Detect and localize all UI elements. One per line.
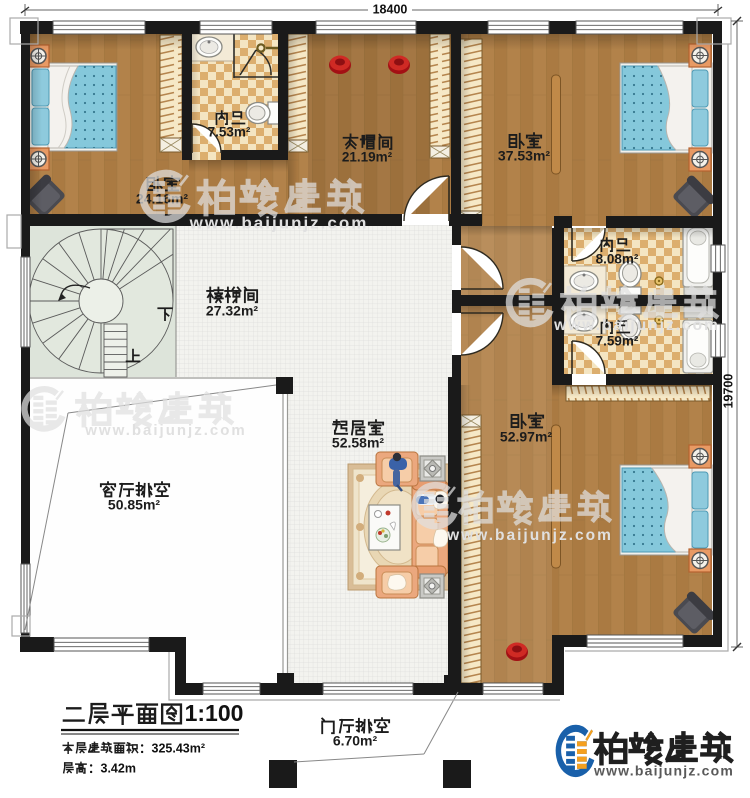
svg-text:27.32m²: 27.32m²: [206, 303, 258, 319]
svg-text:6.70m²: 6.70m²: [333, 733, 378, 749]
svg-text:1:100: 1:100: [185, 700, 244, 726]
svg-text:www.baijunjz.com: www.baijunjz.com: [593, 763, 734, 779]
svg-text:7.59m²: 7.59m²: [596, 334, 639, 349]
svg-text:www.baijunjz.com: www.baijunjz.com: [84, 422, 246, 439]
svg-text:19700: 19700: [721, 374, 735, 409]
svg-text:www.baijunjz.com: www.baijunjz.com: [446, 527, 613, 544]
svg-text:8.08m²: 8.08m²: [596, 252, 639, 267]
svg-text:www.baijunjz.com: www.baijunjz.com: [553, 317, 720, 334]
svg-text:21.19m²: 21.19m²: [342, 150, 393, 165]
svg-text:37.53m²: 37.53m²: [498, 148, 550, 164]
svg-text:www.baijunjz.com: www.baijunjz.com: [189, 213, 369, 232]
svg-text:7.53m²: 7.53m²: [208, 125, 251, 140]
svg-text:52.58m²: 52.58m²: [332, 435, 384, 451]
svg-text:52.97m²: 52.97m²: [500, 429, 552, 445]
svg-text:50.85m²: 50.85m²: [108, 497, 160, 513]
svg-text:：325.43m²: ：325.43m²: [139, 741, 205, 755]
svg-text:：3.42m: ：3.42m: [88, 761, 136, 775]
svg-text:18400: 18400: [373, 2, 408, 16]
